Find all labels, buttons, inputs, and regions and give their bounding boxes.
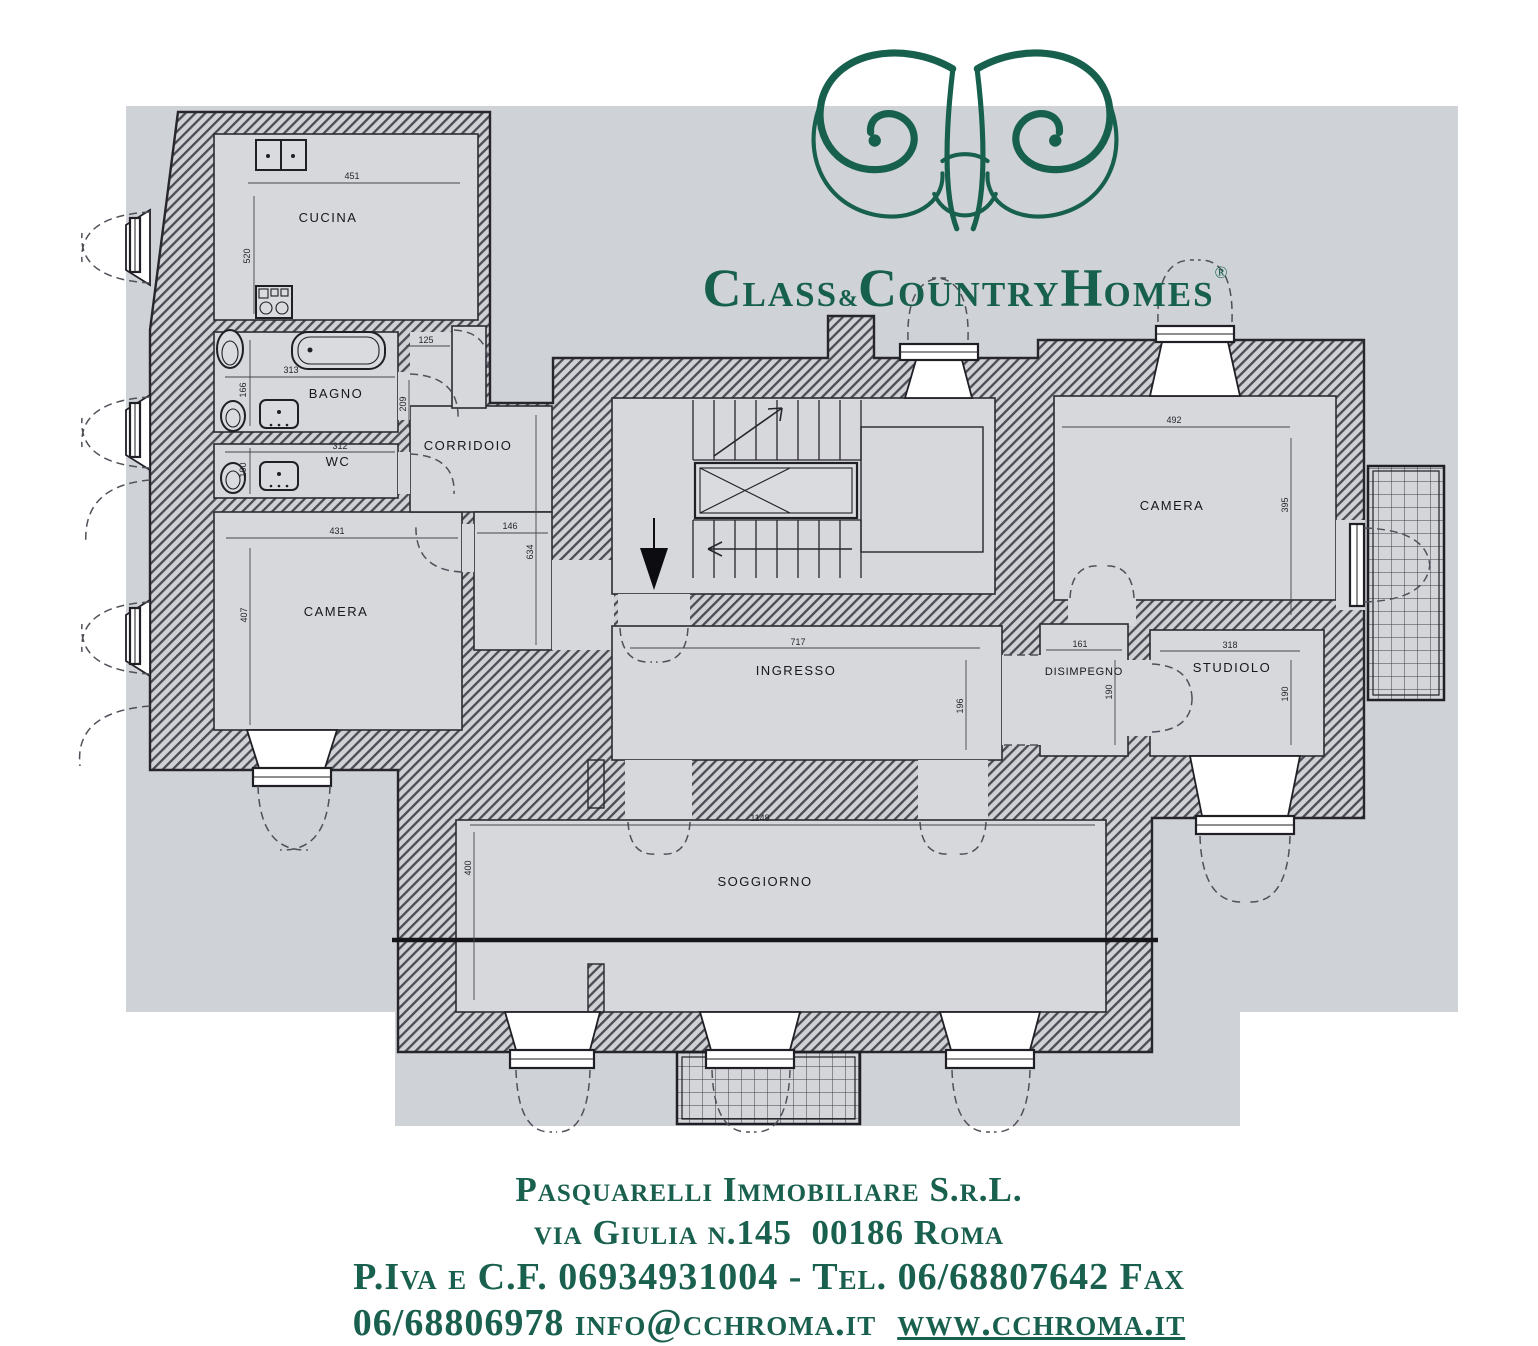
bathtub: [292, 332, 385, 369]
brand-monogram-icon: [780, 38, 1150, 238]
entry-opening: [618, 594, 690, 628]
brand-s2: OUNTRY: [898, 275, 1060, 314]
room-label-wc: WC: [326, 454, 351, 469]
room-ingresso: [612, 626, 1002, 760]
dim-camera-dx-width: 492: [1166, 415, 1181, 425]
room-label-camera-sx: CAMERA: [304, 604, 369, 619]
dim-camera-sx-width: 431: [329, 526, 344, 536]
brand-c2: C: [858, 258, 898, 318]
dim-ingresso-width: 717: [790, 637, 805, 647]
elevator-shaft: [695, 463, 857, 518]
registered-mark: ®: [1215, 263, 1228, 282]
dim-ingresso-height: 196: [955, 698, 965, 713]
wall-stub-top: [588, 760, 604, 808]
corridor-opening: [552, 560, 614, 650]
room-label-camera-dx: CAMERA: [1140, 498, 1205, 513]
footer-contact: Pasquarelli Immobiliare S.r.L. via Giuli…: [0, 1168, 1538, 1346]
door-gap-camera-dx: [1068, 598, 1136, 626]
room-label-studiolo: STUDIOLO: [1193, 660, 1271, 675]
footer-email: 06/68806978 info@cchroma.it: [353, 1302, 897, 1344]
vestibule: [452, 326, 486, 408]
dim-corridoio-height: 634: [525, 544, 535, 559]
room-camera-sx: [214, 512, 462, 730]
door-gap-studiolo: [1126, 660, 1152, 736]
room-label-bagno: BAGNO: [309, 386, 363, 401]
brand-s1: LASS: [742, 275, 838, 314]
brand-c3: H: [1061, 258, 1104, 318]
dim-disimpegno-height: 190: [1104, 684, 1114, 699]
dim-soggiorno-height: 400: [463, 860, 473, 875]
passage-disimpegno: [1002, 655, 1042, 745]
dim-cucina-width: 451: [344, 171, 359, 181]
room-label-soggiorno: SOGGIORNO: [717, 874, 812, 889]
dim-wc-height: 100: [238, 462, 248, 477]
dim-studiolo-height: 190: [1280, 686, 1290, 701]
wall-stub-bottom: [588, 964, 604, 1012]
room-corridoio-mid: [410, 406, 552, 512]
window-left-cucina: [82, 210, 150, 285]
dim-cucina-height: 520: [242, 248, 252, 263]
dim-disimpegno-width: 161: [1072, 639, 1087, 649]
dim-camera-dx-height: 395: [1280, 497, 1290, 512]
window-left-bagno: [82, 395, 150, 470]
brand-ampersand: &: [838, 286, 858, 312]
dim-corridoio-width: 146: [502, 521, 517, 531]
dim-corridoio-mid: 209: [398, 396, 408, 411]
room-soggiorno: [456, 820, 1106, 1012]
dim-bagno-width: 313: [283, 365, 298, 375]
sink-wc: [260, 462, 298, 490]
footer-website: www.cchroma.it: [897, 1302, 1185, 1344]
footer-line-address: via Giulia n.145 00186 Roma: [0, 1211, 1538, 1254]
dim-corridoio-entry: 125: [418, 335, 433, 345]
room-label-disimpegno: DISIMPEGNO: [1045, 666, 1123, 678]
footer-line-vat-phone: P.Iva e C.F. 06934931004 - Tel. 06/68807…: [0, 1254, 1538, 1300]
room-label-corridoio: CORRIDOIO: [424, 438, 513, 453]
passage-soggiorno-1: [625, 760, 692, 822]
sink-bagno: [260, 400, 298, 428]
passage-soggiorno-2: [918, 760, 988, 822]
stove: [256, 286, 292, 318]
brand-s3: OMES: [1104, 275, 1215, 314]
window-left-camera: [82, 600, 150, 676]
kitchen-sink: [256, 140, 306, 170]
room-label-ingresso: INGRESSO: [756, 663, 837, 678]
dim-camera-sx-height: 407: [239, 607, 249, 622]
brand-c1: C: [702, 258, 742, 318]
logo: CLASS&COUNTRYHOMES®: [660, 38, 1270, 330]
footer-line-fax-email: 06/68806978 info@cchroma.it www.cchroma.…: [0, 1300, 1538, 1346]
dim-wc-width: 312: [332, 441, 347, 451]
dim-bagno-height: 166: [238, 382, 248, 397]
dim-soggiorno-width: 1148: [750, 813, 769, 823]
room-label-cucina: CUCINA: [299, 210, 358, 225]
bidet-bagno: [217, 330, 243, 368]
balcony-right: [1368, 466, 1444, 700]
dim-studiolo-width: 318: [1222, 640, 1237, 650]
toilet-bagno: [221, 401, 245, 431]
brand-wordmark: CLASS&COUNTRYHOMES®: [660, 245, 1270, 330]
footer-line-company: Pasquarelli Immobiliare S.r.L.: [0, 1168, 1538, 1211]
